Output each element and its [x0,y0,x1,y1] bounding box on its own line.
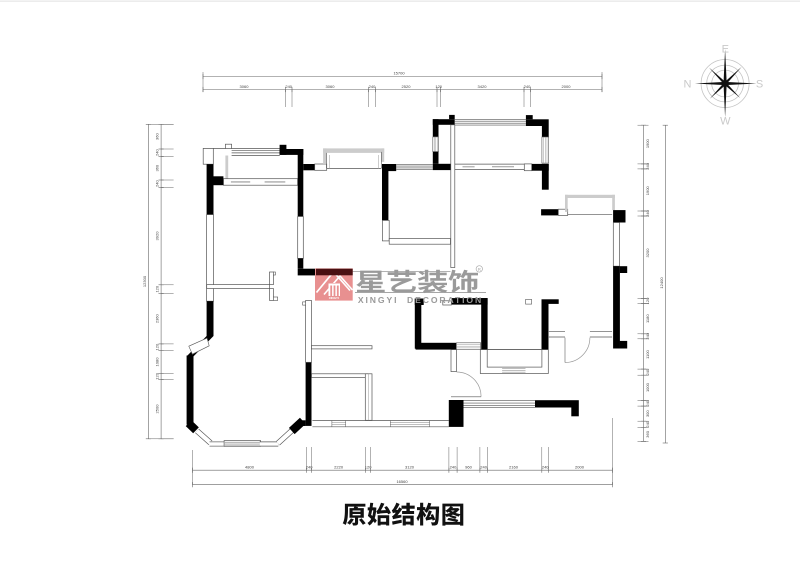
svg-text:2360: 2360 [155,313,160,323]
svg-text:240: 240 [369,84,376,89]
svg-text:120: 120 [365,464,372,469]
svg-text:12400: 12400 [659,277,664,289]
svg-text:16560: 16560 [396,479,408,484]
svg-text:240: 240 [645,209,650,216]
svg-text:120: 120 [435,84,442,89]
svg-text:2160: 2160 [509,464,519,469]
svg-text:12300: 12300 [142,275,147,287]
svg-text:N: N [684,79,692,91]
svg-text:240: 240 [645,162,650,169]
svg-text:1000: 1000 [645,382,650,392]
svg-text:S: S [756,79,763,91]
svg-text:3060: 3060 [240,84,250,89]
svg-text:1080: 1080 [155,357,160,367]
svg-text:2000: 2000 [575,464,585,469]
svg-text:4800: 4800 [245,464,255,469]
svg-text:240: 240 [480,464,487,469]
svg-text:360: 360 [645,430,650,437]
svg-text:240: 240 [645,368,650,375]
svg-text:960: 960 [465,464,472,469]
svg-text:120: 120 [155,372,160,379]
svg-text:R: R [478,267,481,272]
svg-text:XINGYI DECORATION: XINGYI DECORATION [358,295,483,305]
svg-text:2000: 2000 [562,84,572,89]
svg-text:1100: 1100 [645,350,650,359]
svg-text:3060: 3060 [326,84,336,89]
svg-text:15700: 15700 [393,71,405,76]
svg-text:1180: 1180 [645,314,650,323]
svg-text:300: 300 [645,410,650,417]
svg-text:3920: 3920 [155,231,160,241]
svg-text:240: 240 [155,149,160,156]
svg-text:360: 360 [155,164,160,171]
svg-text:2500: 2500 [155,404,160,414]
svg-text:W: W [720,116,731,128]
svg-text:120: 120 [645,297,650,304]
svg-text:1900: 1900 [645,186,650,196]
svg-text:240: 240 [155,180,160,187]
svg-text:XINGYI: XINGYI [329,296,339,300]
svg-text:2520: 2520 [402,84,412,89]
svg-text:240: 240 [645,399,650,406]
svg-text:240: 240 [542,464,549,469]
svg-text:3120: 3120 [405,464,415,469]
svg-text:240: 240 [450,464,457,469]
svg-text:240: 240 [524,84,531,89]
svg-text:3200: 3200 [645,248,650,258]
svg-text:2220: 2220 [334,464,344,469]
svg-text:120: 120 [155,285,160,292]
svg-text:240: 240 [645,332,650,339]
svg-text:240: 240 [306,464,313,469]
svg-text:360: 360 [155,132,160,139]
svg-text:1900: 1900 [645,138,650,148]
svg-text:240: 240 [645,420,650,427]
svg-text:3420: 3420 [478,84,488,89]
svg-text:E: E [722,44,729,56]
svg-text:120: 120 [155,343,160,350]
svg-text:240: 240 [285,84,292,89]
